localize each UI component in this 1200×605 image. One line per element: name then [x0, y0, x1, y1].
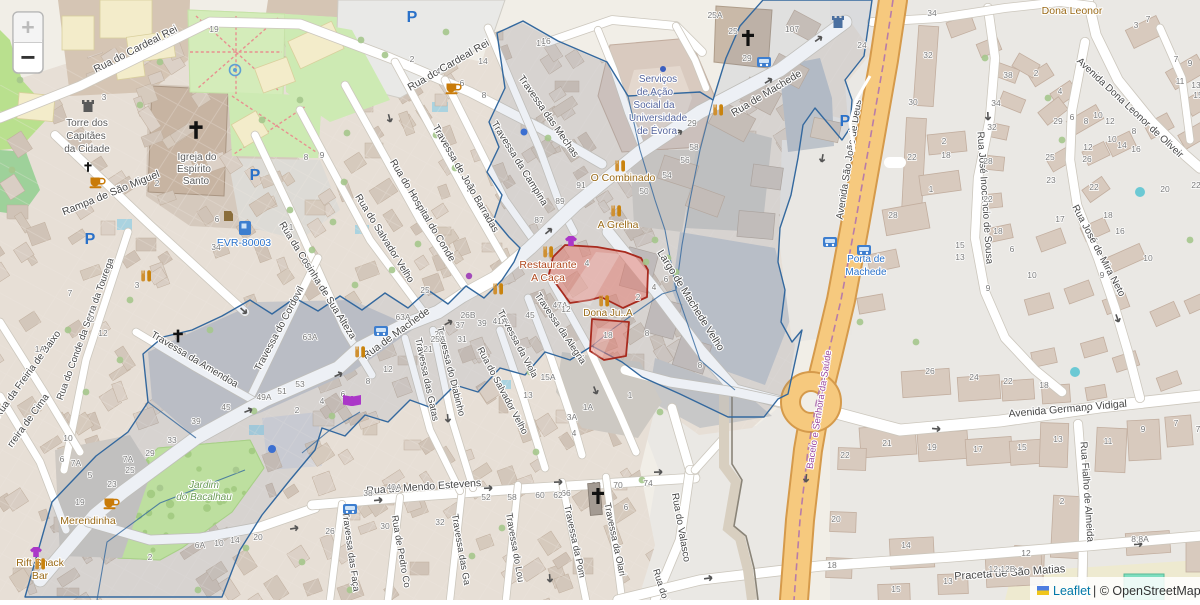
svg-text:12: 12 [561, 304, 571, 314]
svg-text:54: 54 [662, 170, 672, 180]
svg-text:15: 15 [1193, 90, 1200, 100]
svg-text:8;8A: 8;8A [1131, 534, 1149, 544]
svg-text:Espírito: Espírito [177, 164, 211, 175]
svg-text:Universidade: Universidade [629, 113, 688, 124]
svg-text:12: 12 [1021, 548, 1031, 558]
svg-text:Porta de: Porta de [847, 254, 885, 265]
svg-text:87: 87 [534, 215, 544, 225]
svg-text:50: 50 [639, 186, 649, 196]
svg-text:19: 19 [209, 24, 219, 34]
svg-text:7: 7 [1146, 14, 1151, 24]
svg-text:+: + [21, 14, 34, 40]
svg-text:4: 4 [436, 66, 441, 76]
svg-text:38: 38 [363, 488, 373, 498]
svg-text:70: 70 [613, 480, 623, 490]
svg-text:9: 9 [1141, 424, 1146, 434]
svg-text:4: 4 [585, 258, 590, 268]
svg-text:15: 15 [891, 584, 901, 594]
svg-text:9: 9 [1188, 58, 1193, 68]
svg-text:P: P [250, 167, 261, 184]
svg-text:22: 22 [1003, 376, 1013, 386]
svg-text:39: 39 [477, 318, 487, 328]
svg-text:45: 45 [525, 310, 535, 320]
svg-text:40A: 40A [386, 482, 401, 492]
svg-text:12: 12 [98, 328, 108, 338]
svg-text:Igreja do: Igreja do [178, 152, 217, 163]
svg-text:45: 45 [221, 402, 231, 412]
svg-text:22: 22 [1191, 180, 1200, 190]
svg-text:34: 34 [211, 242, 221, 252]
svg-text:4: 4 [1058, 86, 1063, 96]
svg-text:18: 18 [603, 330, 613, 340]
svg-text:12: 12 [1105, 116, 1115, 126]
svg-text:Torre dos: Torre dos [66, 118, 108, 129]
svg-text:31: 31 [457, 334, 467, 344]
svg-text:24: 24 [857, 40, 867, 50]
svg-text:26B: 26B [460, 310, 475, 320]
svg-text:39: 39 [191, 416, 201, 426]
svg-text:2: 2 [1060, 496, 1065, 506]
svg-text:Dona Leonor: Dona Leonor [1042, 5, 1103, 17]
svg-text:Merendinha: Merendinha [60, 515, 116, 527]
svg-text:7A: 7A [71, 458, 82, 468]
svg-text:33: 33 [167, 435, 177, 445]
svg-text:Capitães: Capitães [66, 131, 105, 142]
svg-text:25: 25 [125, 465, 135, 475]
svg-text:13: 13 [1053, 434, 1063, 444]
svg-text:22: 22 [840, 450, 850, 460]
svg-text:7A: 7A [123, 454, 134, 464]
svg-text:11: 11 [1176, 76, 1185, 86]
svg-text:10: 10 [1093, 110, 1103, 120]
svg-text:7: 7 [1174, 54, 1179, 64]
svg-text:15: 15 [955, 240, 965, 250]
svg-text:6A: 6A [195, 540, 206, 550]
svg-text:da Cidade: da Cidade [64, 144, 110, 155]
svg-text:13: 13 [523, 390, 533, 400]
svg-text:16: 16 [1115, 226, 1125, 236]
svg-text:Bar: Bar [32, 570, 49, 582]
svg-text:3: 3 [1134, 20, 1139, 30]
svg-text:41A: 41A [492, 316, 507, 326]
svg-text:Restaurante: Restaurante [519, 259, 576, 271]
svg-text:13: 13 [955, 252, 965, 262]
svg-text:Santo: Santo [183, 176, 210, 187]
svg-text:12: 12 [1083, 142, 1093, 152]
svg-text:4: 4 [320, 396, 325, 406]
svg-text:62: 62 [553, 490, 563, 500]
svg-text:18: 18 [941, 150, 951, 160]
svg-text:2: 2 [1034, 68, 1039, 78]
svg-text:89: 89 [555, 196, 565, 206]
svg-text:10: 10 [1107, 134, 1117, 144]
svg-text:8: 8 [482, 90, 487, 100]
svg-text:12: 12 [383, 364, 393, 374]
svg-text:9: 9 [320, 150, 325, 160]
svg-text:2: 2 [295, 405, 300, 415]
svg-text:25: 25 [728, 26, 738, 36]
svg-text:24: 24 [969, 372, 979, 382]
svg-text:26: 26 [325, 526, 335, 536]
svg-text:18: 18 [827, 560, 837, 570]
svg-text:8: 8 [1084, 116, 1089, 126]
svg-text:4: 4 [652, 282, 657, 292]
svg-text:3: 3 [102, 92, 107, 102]
svg-text:34: 34 [927, 8, 937, 18]
svg-text:A Grelha: A Grelha [598, 219, 639, 231]
svg-text:2: 2 [942, 136, 947, 146]
svg-text:58: 58 [507, 492, 517, 502]
svg-text:8: 8 [304, 152, 309, 162]
svg-text:25A: 25A [707, 10, 722, 20]
svg-text:15A: 15A [540, 372, 555, 382]
svg-text:60: 60 [535, 490, 545, 500]
svg-text:3A: 3A [567, 412, 578, 422]
svg-text:32: 32 [923, 50, 933, 60]
svg-text:107: 107 [785, 24, 799, 34]
svg-text:O Combinado: O Combinado [591, 172, 656, 184]
svg-text:Jardim: Jardim [188, 480, 219, 491]
svg-text:63A: 63A [395, 312, 410, 322]
svg-text:20: 20 [1160, 184, 1170, 194]
svg-text:25: 25 [420, 285, 430, 295]
svg-text:18: 18 [1039, 380, 1049, 390]
svg-text:13: 13 [1191, 80, 1200, 90]
svg-text:74: 74 [643, 478, 653, 488]
svg-text:1: 1 [929, 184, 934, 194]
svg-text:20: 20 [253, 532, 263, 542]
svg-text:25: 25 [1045, 152, 1055, 162]
svg-text:29: 29 [687, 118, 697, 128]
svg-text:23: 23 [1046, 175, 1056, 185]
svg-text:9: 9 [1100, 270, 1105, 280]
svg-text:8: 8 [1132, 126, 1137, 136]
svg-text:14: 14 [1117, 140, 1127, 150]
svg-text:2: 2 [636, 292, 641, 302]
svg-text:18: 18 [993, 226, 1003, 236]
svg-text:6: 6 [215, 214, 220, 224]
svg-text:A Caça: A Caça [531, 272, 565, 284]
svg-text:10: 10 [1027, 270, 1037, 280]
svg-text:53: 53 [295, 379, 305, 389]
svg-text:21: 21 [423, 344, 433, 354]
svg-text:51: 51 [277, 386, 287, 396]
svg-text:58: 58 [689, 142, 699, 152]
svg-text:29: 29 [145, 448, 155, 458]
svg-text:56: 56 [680, 155, 690, 165]
svg-text:21: 21 [882, 438, 892, 448]
svg-text:15: 15 [1017, 442, 1027, 452]
svg-text:37: 37 [455, 320, 465, 330]
svg-text:20: 20 [831, 514, 841, 524]
svg-text:16: 16 [1131, 144, 1141, 154]
svg-text:10: 10 [214, 538, 224, 548]
svg-text:7: 7 [68, 288, 73, 298]
svg-text:Social da: Social da [633, 100, 675, 111]
svg-text:30: 30 [380, 521, 390, 531]
svg-text:−: − [20, 42, 35, 72]
svg-text:6: 6 [60, 454, 65, 464]
svg-text:18: 18 [1103, 210, 1113, 220]
svg-text:17: 17 [1055, 214, 1065, 224]
svg-text:Rift Snack: Rift Snack [16, 557, 65, 569]
svg-text:32: 32 [987, 122, 997, 132]
svg-text:8: 8 [698, 360, 703, 370]
svg-text:2: 2 [90, 314, 95, 324]
svg-text:25A: 25A [430, 334, 445, 344]
svg-text:23: 23 [107, 479, 117, 489]
svg-text:10: 10 [1143, 253, 1153, 263]
svg-text:11: 11 [1104, 436, 1113, 446]
svg-text:28: 28 [888, 210, 898, 220]
svg-text:30: 30 [908, 97, 918, 107]
svg-text:Machede: Machede [845, 267, 887, 278]
svg-text:38: 38 [1003, 70, 1013, 80]
svg-text:22: 22 [983, 194, 993, 204]
svg-text:4: 4 [572, 428, 577, 438]
svg-text:14: 14 [478, 56, 488, 66]
svg-text:1A: 1A [35, 344, 46, 354]
svg-text:26: 26 [925, 366, 935, 376]
svg-text:14: 14 [230, 535, 240, 545]
svg-text:22: 22 [1089, 182, 1099, 192]
svg-text:22: 22 [907, 152, 917, 162]
svg-text:16: 16 [541, 36, 551, 46]
svg-text:de Évora: de Évora [637, 124, 677, 137]
svg-text:52: 52 [481, 492, 491, 502]
svg-text:1: 1 [289, 222, 294, 232]
svg-text:8: 8 [645, 328, 650, 338]
svg-text:13: 13 [943, 576, 953, 586]
svg-text:2: 2 [155, 178, 160, 188]
svg-text:Dona Ju..A: Dona Ju..A [583, 308, 633, 319]
svg-text:P: P [407, 9, 418, 26]
svg-text:17: 17 [973, 444, 983, 454]
svg-text:P: P [85, 231, 96, 248]
svg-text:6: 6 [624, 502, 629, 512]
svg-text:12;12B: 12;12B [989, 564, 1016, 574]
svg-text:Leaflet: Leaflet [1053, 584, 1091, 598]
svg-text:3: 3 [135, 280, 140, 290]
svg-text:32: 32 [435, 517, 445, 527]
svg-text:26: 26 [1082, 154, 1092, 164]
svg-text:29: 29 [1053, 116, 1063, 126]
svg-text:14: 14 [901, 540, 911, 550]
svg-text:1A: 1A [583, 402, 594, 412]
svg-text:63A: 63A [302, 332, 317, 342]
svg-text:5: 5 [88, 470, 93, 480]
svg-text:9: 9 [986, 283, 991, 293]
svg-text:6: 6 [1070, 112, 1075, 122]
svg-text:EVR-80003: EVR-80003 [217, 237, 271, 249]
svg-text:7: 7 [1174, 418, 1179, 428]
svg-text:6: 6 [664, 274, 669, 284]
svg-text:34: 34 [991, 98, 1001, 108]
svg-text:de Ação: de Ação [637, 87, 674, 98]
svg-text:91: 91 [576, 180, 586, 190]
svg-text:7: 7 [1196, 424, 1200, 434]
svg-text:Serviços: Serviços [639, 74, 677, 85]
svg-text:10: 10 [63, 433, 73, 443]
svg-text:do Bacalhau: do Bacalhau [176, 492, 232, 503]
svg-text:49A: 49A [256, 392, 271, 402]
svg-text:2: 2 [410, 54, 415, 64]
svg-text:19: 19 [75, 497, 85, 507]
svg-text:28: 28 [983, 156, 993, 166]
svg-text:1: 1 [628, 390, 633, 400]
svg-text:6: 6 [1010, 244, 1015, 254]
svg-text:| © OpenStreetMap: | © OpenStreetMap [1093, 584, 1200, 598]
svg-text:29: 29 [742, 53, 752, 63]
svg-text:8: 8 [366, 376, 371, 386]
svg-text:19: 19 [927, 442, 937, 452]
svg-text:2: 2 [148, 552, 153, 562]
